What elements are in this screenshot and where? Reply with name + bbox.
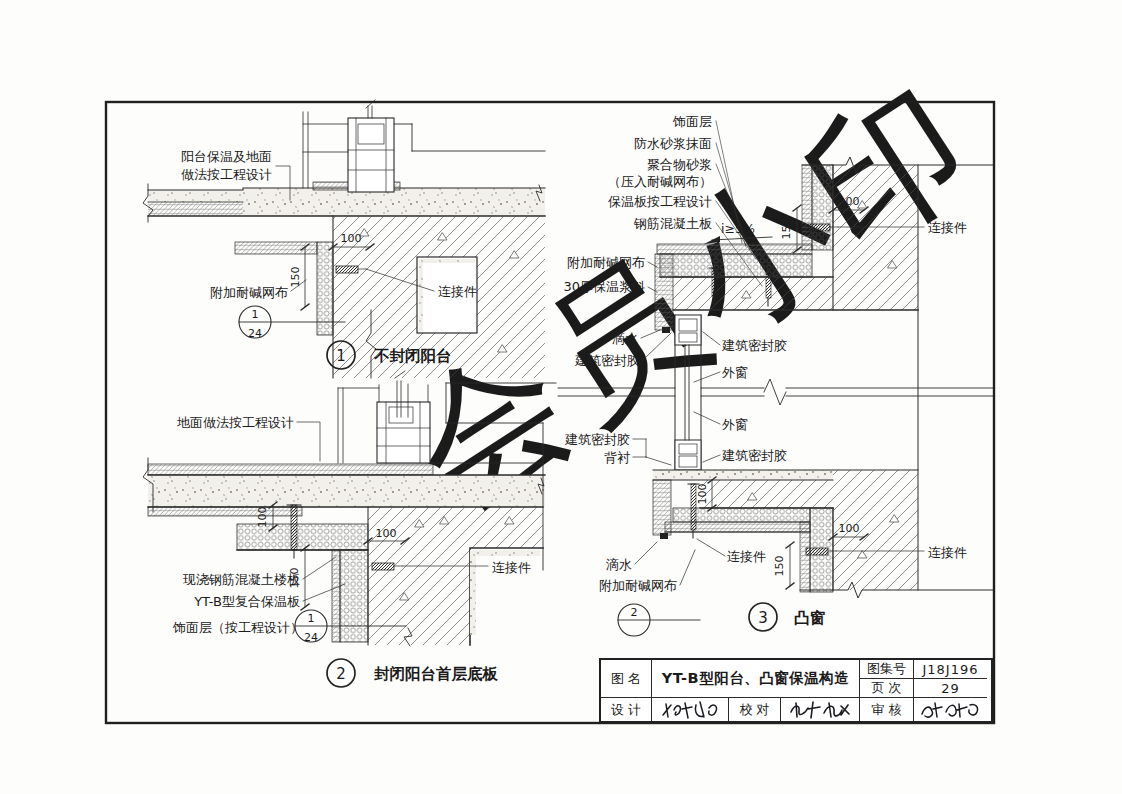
svg-text:3: 3: [758, 609, 768, 627]
label-connector-top-right-d3: 连接件: [928, 220, 967, 235]
atlas-number-label: 图集号: [860, 660, 914, 679]
insulation-layer: [317, 242, 333, 335]
roof-finish-layers: [657, 244, 812, 254]
label-finish-d3: 饰面层: [672, 114, 712, 129]
label-connector-d1: 连接件: [438, 284, 477, 299]
label-connector-bottom-right-d3: 连接件: [928, 545, 967, 560]
label-drip-bottom-d3: 滴水: [606, 557, 632, 572]
svg-text:不封闭阳台: 不封闭阳台: [373, 347, 452, 365]
svg-text:24: 24: [248, 327, 262, 340]
label-mesh-d1: 附加耐碱网布: [210, 285, 288, 300]
atlas-sheet: 会员小印: [0, 0, 1122, 794]
review-signature-scribble: [918, 700, 984, 720]
label-mesh-bottom-d3: 附加耐碱网布: [599, 578, 677, 593]
svg-text:150: 150: [780, 219, 793, 240]
svg-text:100: 100: [256, 507, 269, 528]
label-sealant-bottom-right-d3: 建筑密封胶: [721, 448, 787, 463]
label-finish-layer-d2: 饰面层（按工程设计）: [172, 620, 303, 635]
proof-label: 校 对: [729, 698, 781, 721]
floor-rc-slab-d3: [701, 480, 833, 508]
label-backing-d3: 背衬: [604, 450, 630, 465]
label-board-d3: 保温板按工程设计: [608, 194, 712, 209]
detail-2-title: 2 封闭阳台首层底板: [327, 659, 499, 687]
label-connector-mid-d3: 连接件: [727, 549, 766, 564]
svg-text:100: 100: [839, 522, 860, 535]
label-balcony-note-2: 做法按工程设计: [181, 167, 272, 182]
svg-text:150: 150: [773, 556, 786, 577]
label-insulation-board-d2: YT-B型复合保温板: [193, 594, 300, 609]
svg-text:24: 24: [304, 631, 318, 644]
label-mesh-top-d3: 附加耐碱网布: [567, 255, 645, 270]
label-sealant-top-left-d3: 建筑密封胶: [574, 353, 640, 368]
svg-text:100: 100: [376, 527, 397, 540]
title-block-name-label: 图 名: [601, 660, 652, 698]
detail-ref-2-d3: 2: [618, 604, 700, 636]
svg-text:100: 100: [696, 484, 709, 505]
label-sealant-bottom-left-d3: 建筑密封胶: [564, 432, 630, 447]
design-label: 设 计: [601, 698, 652, 721]
label-slurry-d3: 30厚保温浆料: [563, 279, 645, 294]
page-number-value: 29: [914, 679, 987, 698]
svg-text:100: 100: [839, 195, 860, 208]
svg-text:2: 2: [336, 665, 346, 683]
detail-3-title: 3 凸窗: [749, 603, 826, 631]
svg-text:1: 1: [252, 308, 259, 321]
label-drip-top-d3: 滴水: [612, 331, 638, 346]
drawing-title: YT-B型阳台、凸窗保温构造: [652, 660, 860, 698]
page-number-label: 页 次: [860, 679, 914, 698]
label-sealant-top-right-d3: 建筑密封胶: [721, 338, 787, 353]
window-frame-detail1: [348, 100, 394, 192]
review-label: 审 核: [860, 698, 914, 721]
dimension-150-bottom-d3: 150: [773, 542, 794, 589]
proof-signature: [781, 698, 860, 721]
label-floor-note-d2: 地面做法按工程设计: [177, 415, 294, 430]
svg-text:1: 1: [308, 612, 315, 625]
label-rc-slab-d3: 钢筋混凝土板: [633, 216, 712, 231]
svg-text:封闭阳台首层底板: 封闭阳台首层底板: [373, 665, 499, 683]
roof-insulation: [660, 254, 812, 277]
atlas-number-value: J18J196: [914, 660, 987, 679]
design-signature: [652, 698, 729, 721]
soffit-mesh-layer-d2: [148, 507, 302, 516]
svg-text:1: 1: [336, 347, 346, 365]
wall-hatch-upper-d3: [833, 165, 918, 310]
proof-signature-scribble: [786, 700, 854, 720]
review-signature: [914, 698, 987, 721]
label-window-top-d3: 外窗: [721, 365, 748, 380]
svg-text:100: 100: [341, 232, 362, 245]
detail-1-drawing: 100 150 连接件 阳台保温及地面 做法按工程设计 附加耐碱网布 1 24 …: [143, 100, 545, 378]
label-polymer-d3: 聚合物砂浆: [647, 157, 712, 172]
label-balcony-note-1: 阳台保温及地面: [181, 149, 272, 164]
svg-text:凸窗: 凸窗: [794, 609, 826, 627]
label-waterproof-d3: 防水砂浆抹面: [634, 136, 712, 151]
roof-rc-slab: [673, 277, 833, 310]
label-connector-d2: 连接件: [492, 560, 531, 575]
label-window-bottom-d3: 外窗: [721, 417, 748, 432]
title-block: 图 名 YT-B型阳台、凸窗保温构造 图集号 J18J196 页 次 29 设 …: [599, 658, 993, 723]
svg-text:2: 2: [631, 606, 638, 619]
label-polymer2-d3: （压入耐碱网布）: [608, 174, 712, 189]
label-rc-slab-d2: 现浇钢筋混凝土楼板: [182, 572, 300, 587]
vertical-anchor-d2: [291, 505, 297, 550]
design-signature-scribble: [657, 700, 723, 720]
